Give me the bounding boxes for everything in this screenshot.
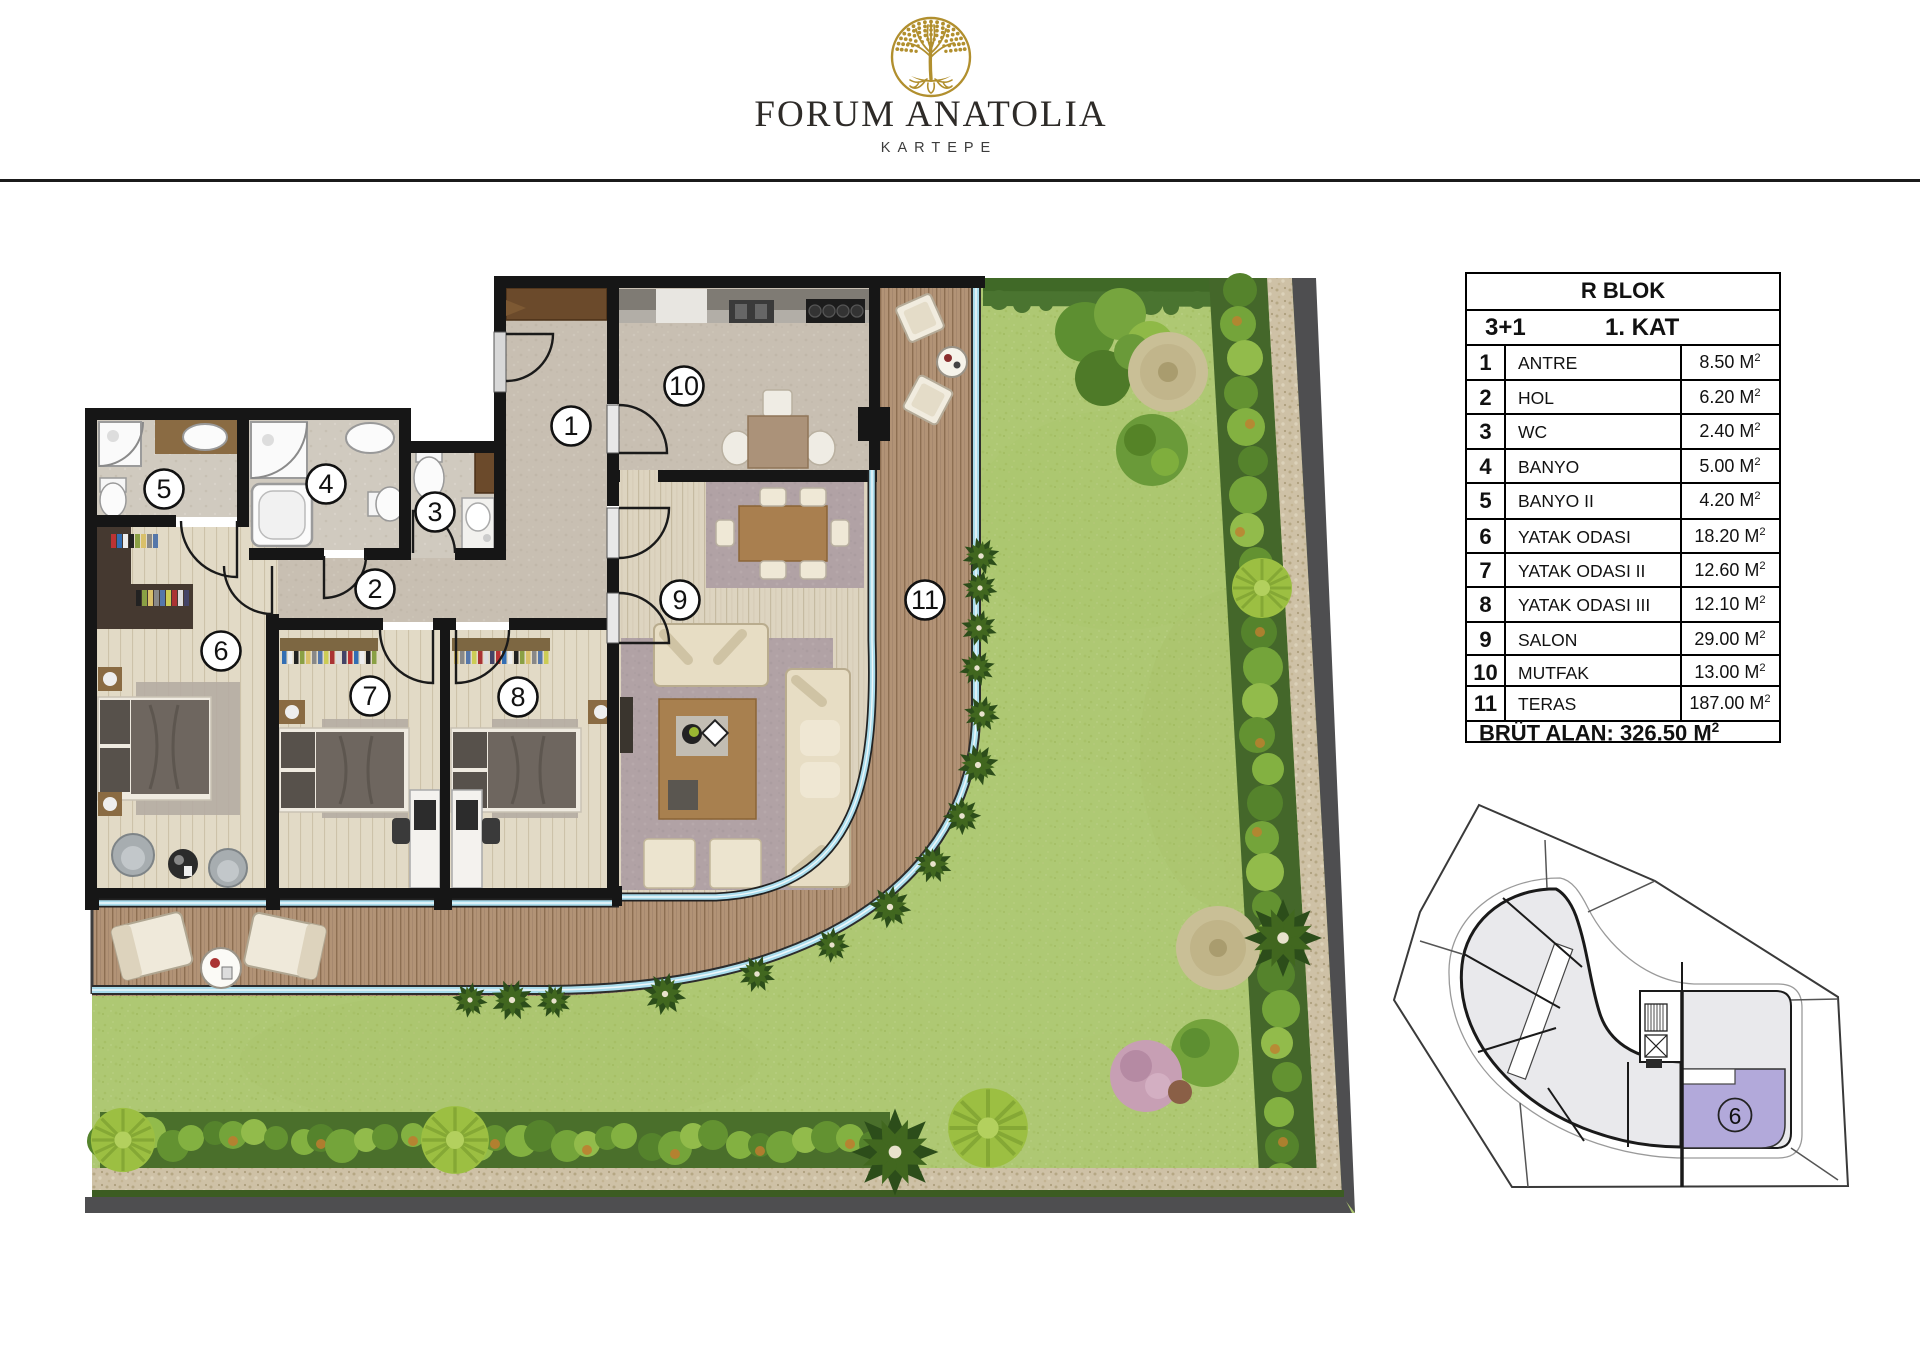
svg-text:11: 11 [911, 585, 939, 615]
svg-text:7: 7 [362, 681, 377, 711]
svg-text:5: 5 [156, 474, 171, 504]
svg-text:10: 10 [669, 371, 699, 401]
svg-text:6: 6 [1729, 1103, 1742, 1129]
svg-text:1: 1 [563, 411, 578, 441]
svg-text:8: 8 [510, 682, 525, 712]
svg-text:4: 4 [318, 469, 333, 499]
svg-text:9: 9 [672, 585, 687, 615]
svg-text:2: 2 [367, 574, 382, 604]
svg-text:3: 3 [427, 497, 442, 527]
svg-text:6: 6 [213, 636, 228, 666]
